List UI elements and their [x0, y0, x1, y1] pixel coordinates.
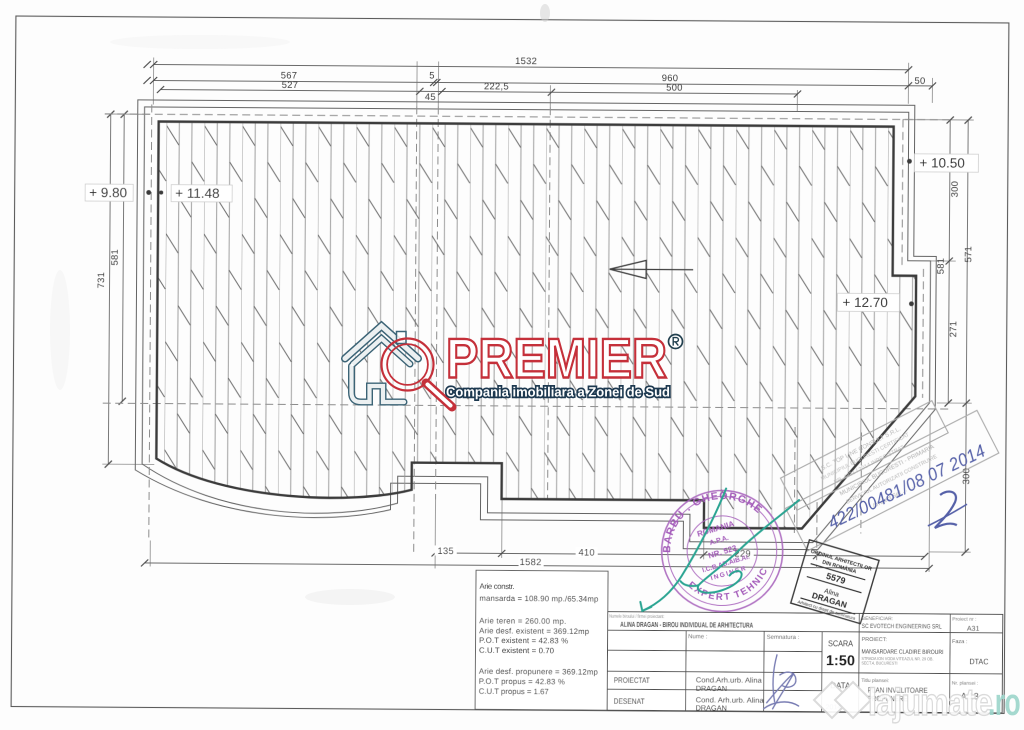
svg-text:Nume :: Nume :: [688, 633, 708, 640]
svg-text:mansarda = 108.90 mp./65.34mp: mansarda = 108.90 mp./65.34mp: [479, 594, 599, 604]
svg-text:271: 271: [947, 321, 958, 338]
svg-text:ALINA DRAGAN - BIROU INDIVIDUA: ALINA DRAGAN - BIROU INDIVIDUAL DE ARHIT…: [620, 620, 754, 630]
svg-text:+ 10.50: + 10.50: [919, 155, 965, 170]
svg-text:410: 410: [578, 546, 595, 557]
svg-text:SECT.4, BUCURESTI: SECT.4, BUCURESTI: [861, 660, 897, 665]
svg-text:135: 135: [437, 545, 454, 556]
svg-text:PROIECTAT: PROIECTAT: [614, 676, 650, 685]
svg-text:.ro: .ro: [988, 682, 1020, 724]
svg-text:300: 300: [949, 181, 960, 198]
svg-text:Arie constr.: Arie constr.: [479, 582, 514, 591]
svg-text:A31: A31: [967, 626, 980, 633]
svg-text:BENEFICIAR:: BENEFICIAR:: [862, 616, 893, 622]
svg-text:DTAC: DTAC: [969, 657, 988, 666]
svg-text:DRAGAN: DRAGAN: [696, 703, 727, 712]
svg-text:527: 527: [282, 79, 299, 90]
svg-text:+ 12.70: + 12.70: [842, 295, 888, 310]
svg-text:SC EVOTECH ENGINEERING SRL: SC EVOTECH ENGINEERING SRL: [862, 623, 942, 631]
svg-text:MANSARDARE CLADIRE BIROURI: MANSARDARE CLADIRE BIROURI: [861, 648, 943, 656]
svg-text:PREMIER: PREMIER: [446, 327, 667, 390]
svg-text:Arie desf. existent = 369.12mp: Arie desf. existent = 369.12mp: [479, 626, 590, 636]
svg-text:Arie desf. propunere = 369.12m: Arie desf. propunere = 369.12mp: [479, 667, 599, 677]
svg-text:DESENAT: DESENAT: [614, 697, 645, 706]
svg-text:DRAGAN: DRAGAN: [696, 684, 727, 693]
svg-text:50: 50: [914, 75, 925, 86]
svg-text:1532: 1532: [515, 55, 537, 66]
svg-text:lajumate: lajumate: [868, 682, 992, 724]
svg-text:C.U.T propus = 1.67: C.U.T propus = 1.67: [479, 687, 549, 696]
svg-text:731: 731: [95, 272, 106, 289]
svg-text:1:50: 1:50: [826, 653, 855, 669]
svg-text:5: 5: [429, 69, 435, 80]
svg-text:C.U.T existent = 0.70: C.U.T existent = 0.70: [479, 646, 555, 656]
svg-text:+ 11.48: + 11.48: [175, 186, 220, 201]
svg-text:Semnatura :: Semnatura :: [767, 634, 800, 641]
svg-text:Arie teren = 260.00 mp.: Arie teren = 260.00 mp.: [479, 616, 566, 626]
svg-text:P.O.T propus = 42.83 %: P.O.T propus = 42.83 %: [479, 677, 565, 687]
svg-text:500: 500: [666, 82, 683, 93]
svg-text:45: 45: [425, 91, 436, 102]
svg-text:571: 571: [962, 246, 973, 263]
svg-text:1582: 1582: [520, 556, 542, 567]
svg-text:SCARA: SCARA: [828, 638, 853, 648]
svg-text:Faza :: Faza :: [952, 639, 968, 645]
svg-text:Proiect nr :: Proiect nr :: [952, 617, 976, 623]
svg-text:PROIECT:: PROIECT:: [862, 637, 888, 643]
svg-text:+ 9.80: + 9.80: [89, 185, 127, 200]
svg-text:222,5: 222,5: [484, 80, 509, 91]
svg-text:P.O.T existent = 42.83 %: P.O.T existent = 42.83 %: [479, 636, 568, 646]
svg-text:Compania imobiliara a Zonei de: Compania imobiliara a Zonei de Sud: [446, 385, 670, 400]
svg-text:581: 581: [109, 249, 120, 266]
